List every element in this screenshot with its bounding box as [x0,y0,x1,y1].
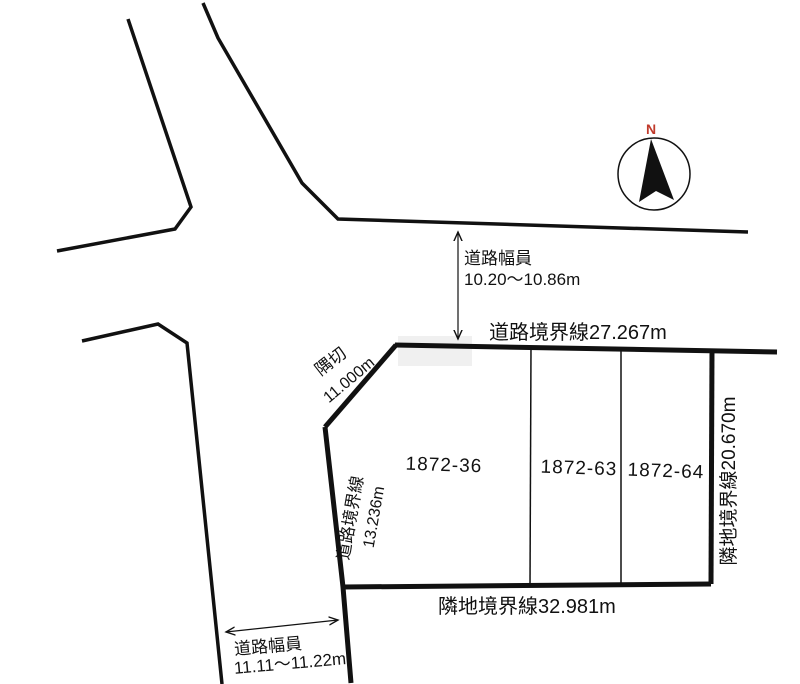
adjacent-boundary-bottom-label: 隣地境界線32.981m [438,595,616,618]
road-edge-upper-left-west [57,19,191,251]
parcel-label-1872-36: 1872-36 [405,454,482,478]
top-road-width-caption: 道路幅員 [464,249,532,268]
top-road-width-value: 10.20〜10.86m [464,270,580,289]
parcel-boundary-bottom [343,584,711,587]
site-plan-drawing: N 道路幅員 10.20〜10.86m 道路境界線27.267m 隅切 11.0… [0,0,800,684]
parcel-boundary-right [711,351,712,584]
parcel-label-1872-63: 1872-63 [540,457,617,481]
north-label: N [646,121,656,137]
road-edge-upper-north [203,3,748,232]
shaded-patch [398,336,472,366]
left-road-width-arrow [226,620,338,632]
road-boundary-left-label: 道路境界線 [334,474,367,561]
adjacent-boundary-right-label: 隣地境界線20.670m [718,397,740,566]
road-edge-lower-left-west [82,324,222,684]
road-boundary-left-value: 13.236m [361,485,389,549]
site-plan: N 道路幅員 10.20〜10.86m 道路境界線27.267m 隅切 11.0… [0,0,800,684]
north-needle-icon [639,139,674,202]
parcel-divider-1 [530,347,531,586]
road-boundary-top-label: 道路境界線27.267m [489,321,667,344]
parcel-label-1872-64: 1872-64 [627,460,704,484]
